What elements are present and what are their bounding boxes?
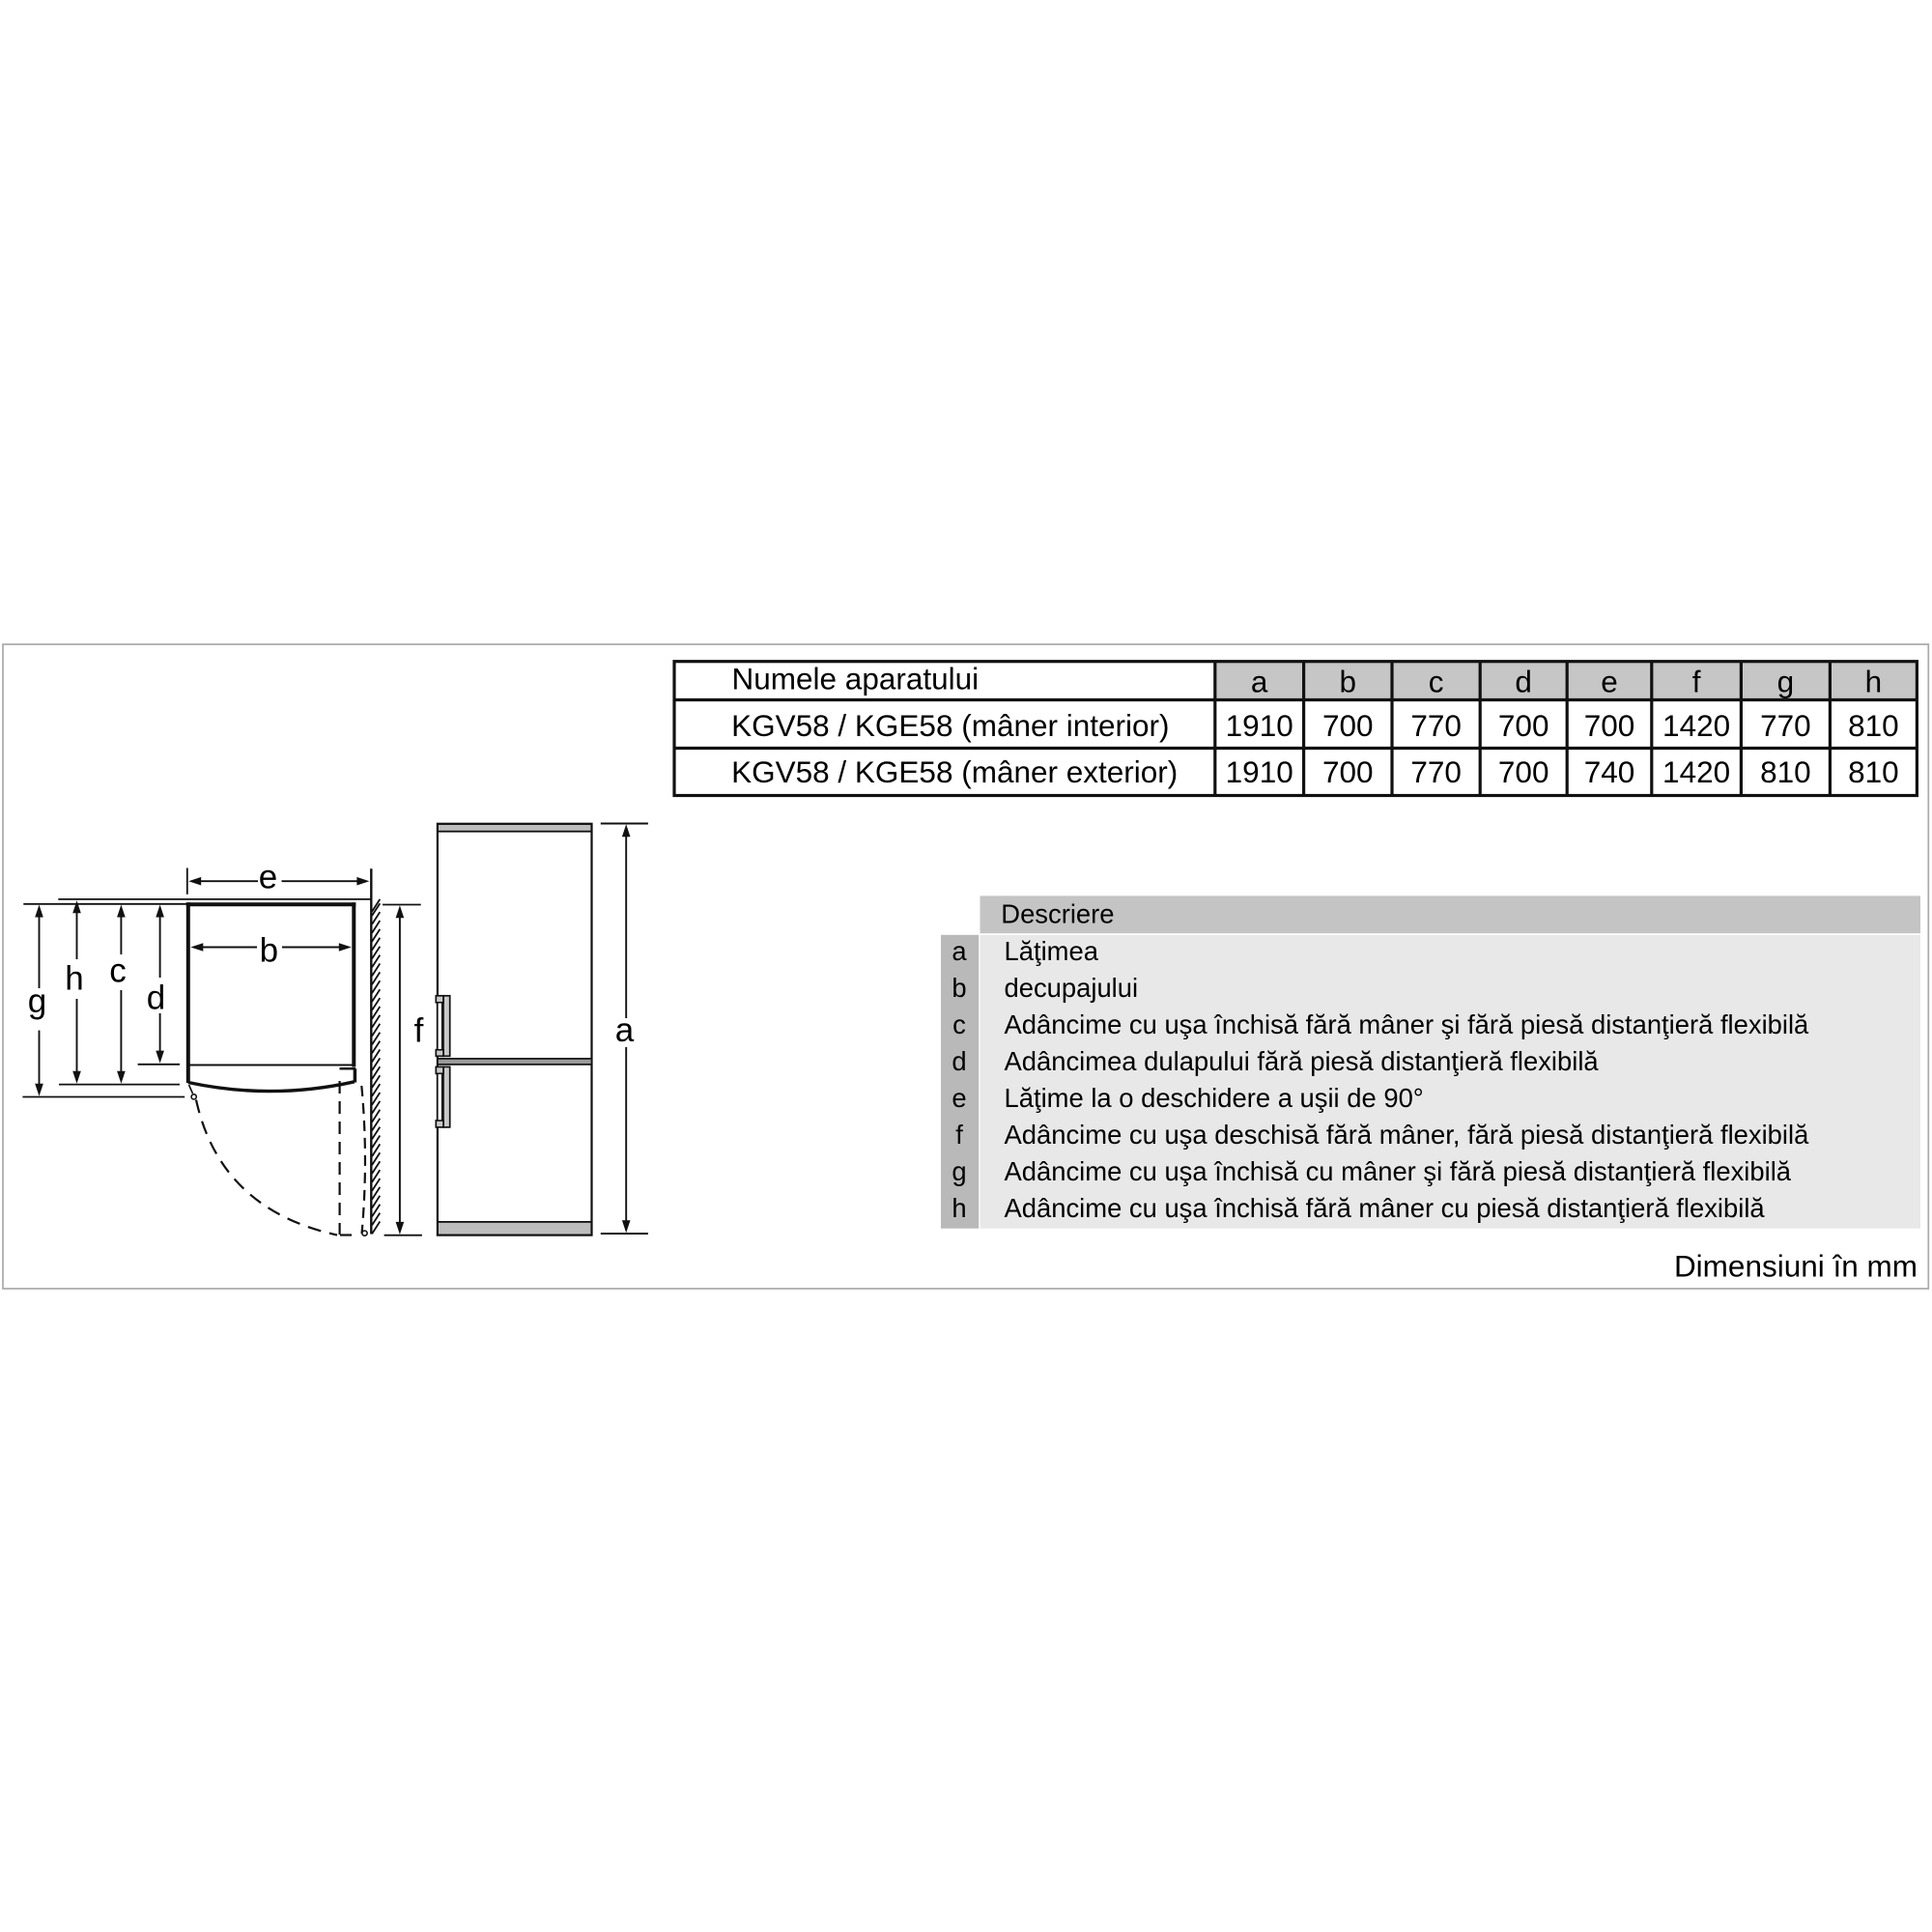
svg-text:770: 770 bbox=[1410, 708, 1462, 743]
svg-text:Lăţimea: Lăţimea bbox=[1005, 936, 1099, 966]
svg-text:b: b bbox=[260, 932, 278, 970]
svg-text:b: b bbox=[1340, 664, 1357, 698]
svg-text:810: 810 bbox=[1760, 754, 1811, 789]
svg-text:810: 810 bbox=[1848, 754, 1899, 789]
svg-text:h: h bbox=[1865, 664, 1883, 698]
svg-text:1420: 1420 bbox=[1662, 708, 1730, 743]
svg-text:Lăţime la o deschidere a uşii: Lăţime la o deschidere a uşii de 90° bbox=[1005, 1083, 1424, 1113]
svg-text:e: e bbox=[1601, 664, 1618, 698]
svg-text:Adâncime cu uşa închisă cu mân: Adâncime cu uşa închisă cu mâner şi fără… bbox=[1005, 1156, 1792, 1186]
svg-text:g: g bbox=[28, 982, 46, 1020]
svg-text:700: 700 bbox=[1498, 754, 1549, 789]
svg-text:c: c bbox=[1429, 664, 1444, 698]
svg-text:770: 770 bbox=[1760, 708, 1811, 743]
svg-text:g: g bbox=[1777, 664, 1795, 698]
svg-text:a: a bbox=[615, 1011, 635, 1049]
svg-text:Adâncime cu uşa închisă fără m: Adâncime cu uşa închisă fără mâner şi fă… bbox=[1005, 1009, 1810, 1039]
svg-text:700: 700 bbox=[1322, 754, 1374, 789]
svg-text:1910: 1910 bbox=[1226, 708, 1293, 743]
svg-text:Adâncime cu uşa deschisă fără: Adâncime cu uşa deschisă fără mâner, făr… bbox=[1005, 1120, 1810, 1150]
svg-text:700: 700 bbox=[1498, 708, 1549, 743]
svg-text:d: d bbox=[147, 979, 165, 1016]
svg-text:decupajului: decupajului bbox=[1005, 973, 1139, 1003]
svg-text:e: e bbox=[952, 1083, 966, 1113]
svg-text:a: a bbox=[1251, 664, 1268, 698]
svg-text:Numele aparatului: Numele aparatului bbox=[732, 662, 980, 696]
svg-text:810: 810 bbox=[1848, 708, 1899, 743]
svg-text:h: h bbox=[65, 960, 83, 998]
svg-text:1910: 1910 bbox=[1226, 754, 1293, 789]
svg-text:KGV58 / KGE58 (mâner exterior): KGV58 / KGE58 (mâner exterior) bbox=[731, 754, 1178, 789]
svg-text:740: 740 bbox=[1584, 754, 1635, 789]
svg-text:f: f bbox=[1692, 664, 1701, 698]
svg-text:700: 700 bbox=[1584, 708, 1635, 743]
svg-text:f: f bbox=[414, 1012, 424, 1050]
svg-text:700: 700 bbox=[1322, 708, 1374, 743]
svg-text:Dimensiuni în mm: Dimensiuni în mm bbox=[1674, 1248, 1918, 1283]
svg-text:d: d bbox=[1515, 664, 1532, 698]
svg-text:b: b bbox=[952, 973, 966, 1003]
svg-text:Adâncimea dulapului fără piesă: Adâncimea dulapului fără piesă distanţie… bbox=[1005, 1046, 1600, 1076]
svg-text:a: a bbox=[952, 936, 967, 966]
svg-text:h: h bbox=[952, 1193, 966, 1223]
svg-text:c: c bbox=[109, 952, 127, 989]
svg-text:d: d bbox=[952, 1046, 966, 1076]
svg-text:KGV58 / KGE58 (mâner interior): KGV58 / KGE58 (mâner interior) bbox=[731, 708, 1169, 743]
svg-text:Descriere: Descriere bbox=[1001, 898, 1114, 928]
svg-text:c: c bbox=[952, 1009, 966, 1039]
svg-text:f: f bbox=[955, 1120, 963, 1150]
svg-text:1420: 1420 bbox=[1662, 754, 1730, 789]
svg-text:e: e bbox=[259, 859, 277, 896]
svg-text:g: g bbox=[952, 1156, 966, 1186]
svg-text:770: 770 bbox=[1410, 754, 1462, 789]
svg-text:Adâncime cu uşa închisă fără m: Adâncime cu uşa închisă fără mâner cu pi… bbox=[1005, 1193, 1766, 1223]
